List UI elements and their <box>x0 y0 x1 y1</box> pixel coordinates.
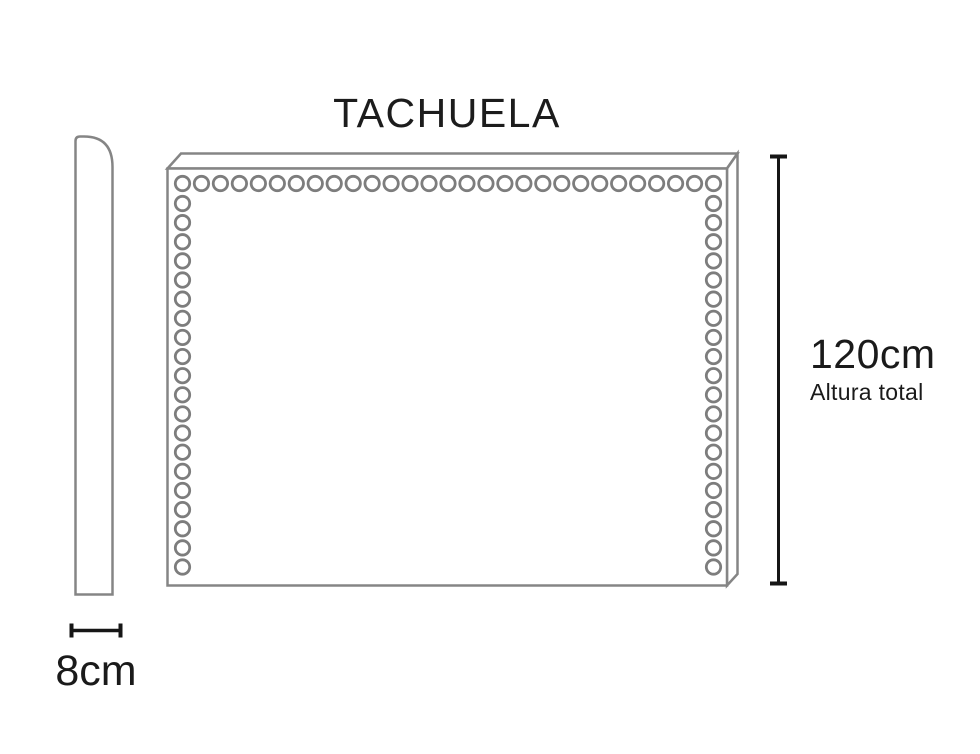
tack-stud <box>346 176 360 190</box>
tack-stud <box>175 502 189 516</box>
tack-stud <box>706 215 720 229</box>
tack-stud <box>706 349 720 363</box>
tack-stud <box>706 196 720 210</box>
tack-stud <box>706 330 720 344</box>
tack-stud <box>706 388 720 402</box>
tack-stud <box>479 176 493 190</box>
depth-dimension-label: 8cm <box>28 650 164 693</box>
height-value: 120cm <box>810 334 936 375</box>
tack-stud <box>175 273 189 287</box>
height-dimension-label: 120cm Altura total <box>810 334 936 404</box>
tack-stud <box>706 502 720 516</box>
tack-stud <box>232 176 246 190</box>
tack-stud <box>574 176 588 190</box>
tack-stud <box>175 215 189 229</box>
tack-stud <box>213 176 227 190</box>
front-view-box <box>168 154 738 586</box>
depth-dimension-line <box>72 624 121 638</box>
tack-stud <box>706 235 720 249</box>
tack-stud <box>706 273 720 287</box>
tack-stud <box>175 235 189 249</box>
tack-stud <box>706 445 720 459</box>
headboard-dimension-diagram: TACHUELA 120cm Altura total 8cm <box>0 0 980 754</box>
tack-stud <box>441 176 455 190</box>
tack-stud <box>175 368 189 382</box>
tack-stud <box>175 426 189 440</box>
tack-stud <box>175 292 189 306</box>
tack-stud <box>498 176 512 190</box>
tack-stud <box>706 483 720 497</box>
tack-stud <box>536 176 550 190</box>
tack-stud <box>175 254 189 268</box>
tack-stud <box>175 349 189 363</box>
top-face <box>168 154 738 169</box>
tack-stud <box>706 560 720 574</box>
tack-stud <box>668 176 682 190</box>
tack-stud <box>175 388 189 402</box>
tack-stud <box>706 426 720 440</box>
tack-stud <box>175 176 189 190</box>
tack-stud <box>706 176 720 190</box>
tack-stud <box>687 176 701 190</box>
tack-stud <box>175 407 189 421</box>
tack-stud <box>175 196 189 210</box>
tack-stud <box>706 254 720 268</box>
tack-stud <box>270 176 284 190</box>
tack-stud <box>175 311 189 325</box>
tack-stud <box>706 522 720 536</box>
height-sublabel: Altura total <box>810 381 936 404</box>
tack-stud <box>555 176 569 190</box>
tack-stud <box>593 176 607 190</box>
tack-stud <box>308 176 322 190</box>
tack-stud <box>630 176 644 190</box>
tack-stud <box>517 176 531 190</box>
tack-stud <box>706 407 720 421</box>
side-profile-outline <box>76 137 113 595</box>
tack-stud <box>194 176 208 190</box>
tack-stud <box>327 176 341 190</box>
tack-stud <box>175 560 189 574</box>
front-face <box>168 169 728 586</box>
tack-stud <box>611 176 625 190</box>
tack-stud <box>706 541 720 555</box>
tack-stud <box>706 292 720 306</box>
tack-stud <box>175 522 189 536</box>
tack-stud <box>175 464 189 478</box>
tack-stud <box>251 176 265 190</box>
tack-stud <box>175 483 189 497</box>
tack-stud <box>384 176 398 190</box>
tack-stud <box>649 176 663 190</box>
tack-stud <box>175 330 189 344</box>
height-dimension-line <box>770 157 787 584</box>
tack-stud <box>403 176 417 190</box>
right-side-face <box>727 154 738 586</box>
tack-stud <box>706 368 720 382</box>
tack-stud <box>289 176 303 190</box>
tack-stud <box>175 445 189 459</box>
tack-stud <box>706 464 720 478</box>
tack-stud <box>365 176 379 190</box>
tack-stud <box>706 311 720 325</box>
tack-stud <box>460 176 474 190</box>
tack-stud <box>422 176 436 190</box>
tack-stud <box>175 541 189 555</box>
